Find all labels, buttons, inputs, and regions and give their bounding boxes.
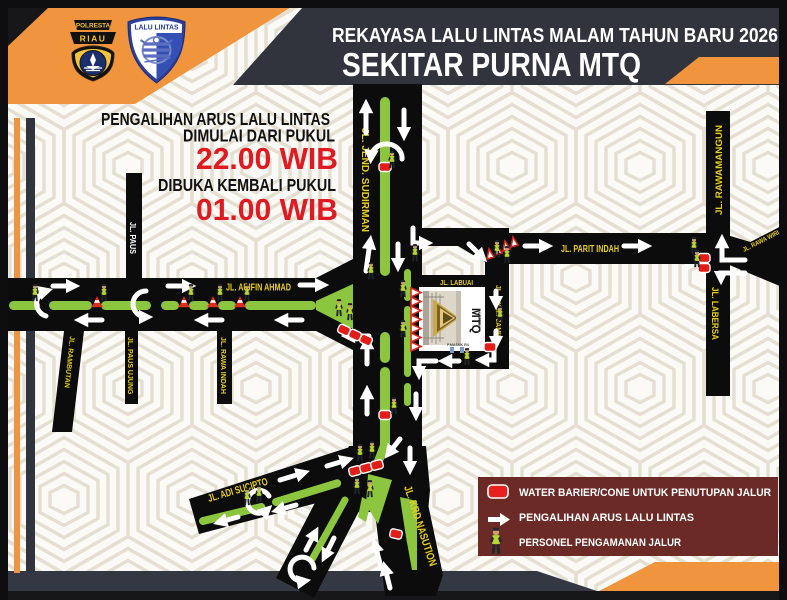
svg-text:RIAU: RIAU (80, 34, 107, 44)
svg-text:JL. RAWAMANGUN: JL. RAWAMANGUN (714, 125, 724, 215)
svg-text:JL. JEND. SUDIRMAN: JL. JEND. SUDIRMAN (359, 128, 371, 232)
svg-text:PERSONEL PENGAMANAN JALUR: PERSONEL PENGAMANAN JALUR (519, 537, 681, 549)
svg-text:P.MASUK R4: P.MASUK R4 (447, 343, 469, 347)
svg-text:JL. PAUS UJUNG: JL. PAUS UJUNG (126, 337, 133, 395)
svg-text:JL. ARIFIN AHMAD: JL. ARIFIN AHMAD (226, 283, 291, 294)
svg-text:PENGALIHAN ARUS LALU LINTAS: PENGALIHAN ARUS LALU LINTAS (519, 512, 695, 524)
svg-text:WATER BARIER/CONE UNTUK PENUTU: WATER BARIER/CONE UNTUK PENUTUPAN JALUR (519, 487, 771, 499)
svg-text:01.00 WIB: 01.00 WIB (196, 192, 338, 227)
svg-text:POLRESTA: POLRESTA (76, 23, 111, 30)
svg-text:JL. PAUS: JL. PAUS (128, 222, 138, 254)
svg-text:SEKITAR PURNA MTQ: SEKITAR PURNA MTQ (342, 46, 641, 83)
svg-text:JL. LABERSA: JL. LABERSA (710, 287, 720, 340)
svg-text:LALU LINTAS: LALU LINTAS (135, 25, 179, 32)
svg-text:22.00 WIB: 22.00 WIB (196, 141, 338, 176)
svg-text:JL. RAWA INDAH: JL. RAWA INDAH (219, 337, 226, 394)
svg-text:JL. LABUAI: JL. LABUAI (440, 278, 473, 287)
svg-text:CN MASJID A: CN MASJID A (477, 309, 481, 333)
svg-text:JL. PARIT INDAH: JL. PARIT INDAH (561, 244, 619, 255)
svg-text:REKAYASA LALU LINTAS MALAM TAH: REKAYASA LALU LINTAS MALAM TAHUN BARU 20… (332, 24, 778, 47)
